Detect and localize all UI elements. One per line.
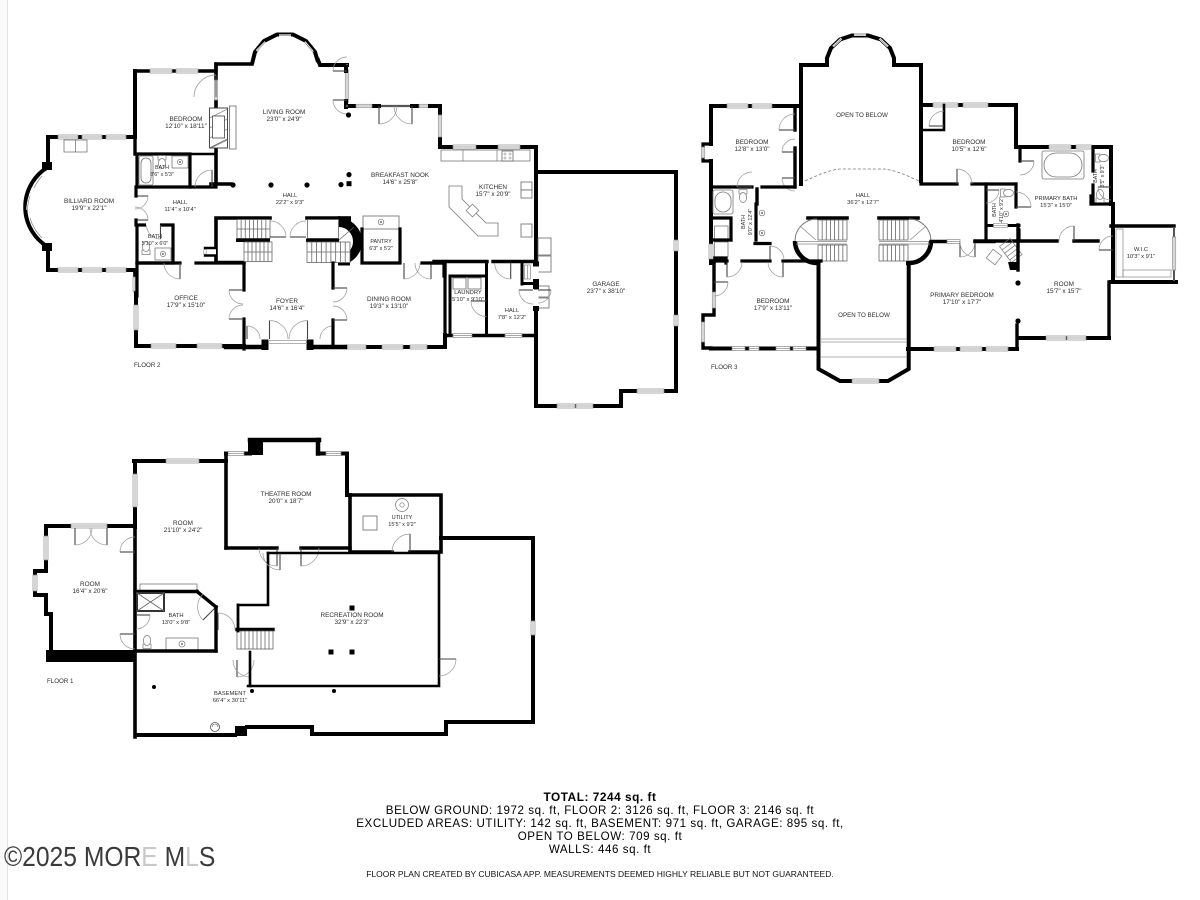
svg-text:OFFICE17'9" x 15'10": OFFICE17'9" x 15'10" xyxy=(167,295,206,309)
svg-text:KITCHEN15'7" x 20'9": KITCHEN15'7" x 20'9" xyxy=(475,184,510,198)
svg-text:BATH9'0" x 12'4": BATH9'0" x 12'4" xyxy=(741,209,754,236)
svg-text:BASEMENT66'4" x 30'11": BASEMENT66'4" x 30'11" xyxy=(213,691,248,704)
svg-text:HALL7'8" x 12'2": HALL7'8" x 12'2" xyxy=(498,308,527,321)
svg-text:RECREATION ROOM32'9" x 22'3": RECREATION ROOM32'9" x 22'3" xyxy=(320,612,383,626)
svg-text:GARAGE23'7" x 38'10": GARAGE23'7" x 38'10" xyxy=(587,281,626,295)
svg-text:FOYER14'6" x 16'4": FOYER14'6" x 16'4" xyxy=(269,298,304,312)
svg-text:UTILITY15'5" x 9'2": UTILITY15'5" x 9'2" xyxy=(388,515,416,528)
svg-text:HALL11'4" x 10'4": HALL11'4" x 10'4" xyxy=(164,200,195,213)
svg-text:LIVING ROOM23'0" x 24'9": LIVING ROOM23'0" x 24'9" xyxy=(263,109,306,123)
svg-text:ROOM15'7" x 15'7": ROOM15'7" x 15'7" xyxy=(1046,281,1081,295)
svg-text:BILLIARD ROOM19'9" x 22'1": BILLIARD ROOM19'9" x 22'1" xyxy=(64,198,114,212)
svg-text:ROOM21'10" x 24'2": ROOM21'10" x 24'2" xyxy=(164,520,203,534)
svg-text:BEDROOM17'9" x 13'11": BEDROOM17'9" x 13'11" xyxy=(754,298,792,312)
svg-text:PANTRY6'3" x 5'2": PANTRY6'3" x 5'2" xyxy=(369,239,393,252)
svg-text:BREAKFAST NOOK14'6" x 25'8": BREAKFAST NOOK14'6" x 25'8" xyxy=(371,172,430,186)
svg-text:BEDROOM10'5" x 12'6": BEDROOM10'5" x 12'6" xyxy=(951,139,986,153)
svg-text:BATH8'6" x 5'3": BATH8'6" x 5'3" xyxy=(150,165,174,178)
svg-text:BEDROOM12'10" x 18'11": BEDROOM12'10" x 18'11" xyxy=(165,116,207,130)
svg-text:PRIMARY BEDROOM17'10" x 17'7": PRIMARY BEDROOM17'10" x 17'7" xyxy=(930,292,994,306)
svg-text:HALL36'2" x 12'7": HALL36'2" x 12'7" xyxy=(847,193,879,206)
svg-text:ROOM16'4" x 20'6": ROOM16'4" x 20'6" xyxy=(72,581,107,595)
svg-text:BEDROOM12'8" x 13'0": BEDROOM12'8" x 13'0" xyxy=(734,139,769,153)
svg-text:BATH13'0" x 9'8": BATH13'0" x 9'8" xyxy=(162,613,191,626)
svg-text:FLOOR 3: FLOOR 3 xyxy=(711,364,738,371)
svg-text:BATH3'5" x 9'3": BATH3'5" x 9'3" xyxy=(1093,165,1106,188)
svg-text:OPEN TO BELOW: OPEN TO BELOW xyxy=(836,112,888,119)
svg-text:FLOOR 2: FLOOR 2 xyxy=(134,362,161,369)
svg-text:DINING ROOM19'3" x 13'10": DINING ROOM19'3" x 13'10" xyxy=(367,296,411,310)
svg-text:PRIMARY BATH15'3" x 15'0": PRIMARY BATH15'3" x 15'0" xyxy=(1035,196,1078,209)
svg-text:HALL22'2" x 9'3": HALL22'2" x 9'3" xyxy=(276,193,305,206)
svg-text:THEATRE ROOM20'0" x 18'7": THEATRE ROOM20'0" x 18'7" xyxy=(260,491,311,505)
svg-text:OPEN TO BELOW: OPEN TO BELOW xyxy=(838,312,890,319)
svg-text:BATH5'10" x 6'0": BATH5'10" x 6'0" xyxy=(142,234,169,247)
svg-text:W.I.C10'3" x 9'1": W.I.C10'3" x 9'1" xyxy=(1127,247,1156,260)
svg-text:BATH4'10" x 9'2": BATH4'10" x 9'2" xyxy=(992,197,1005,223)
svg-text:FLOOR 1: FLOOR 1 xyxy=(47,678,74,685)
